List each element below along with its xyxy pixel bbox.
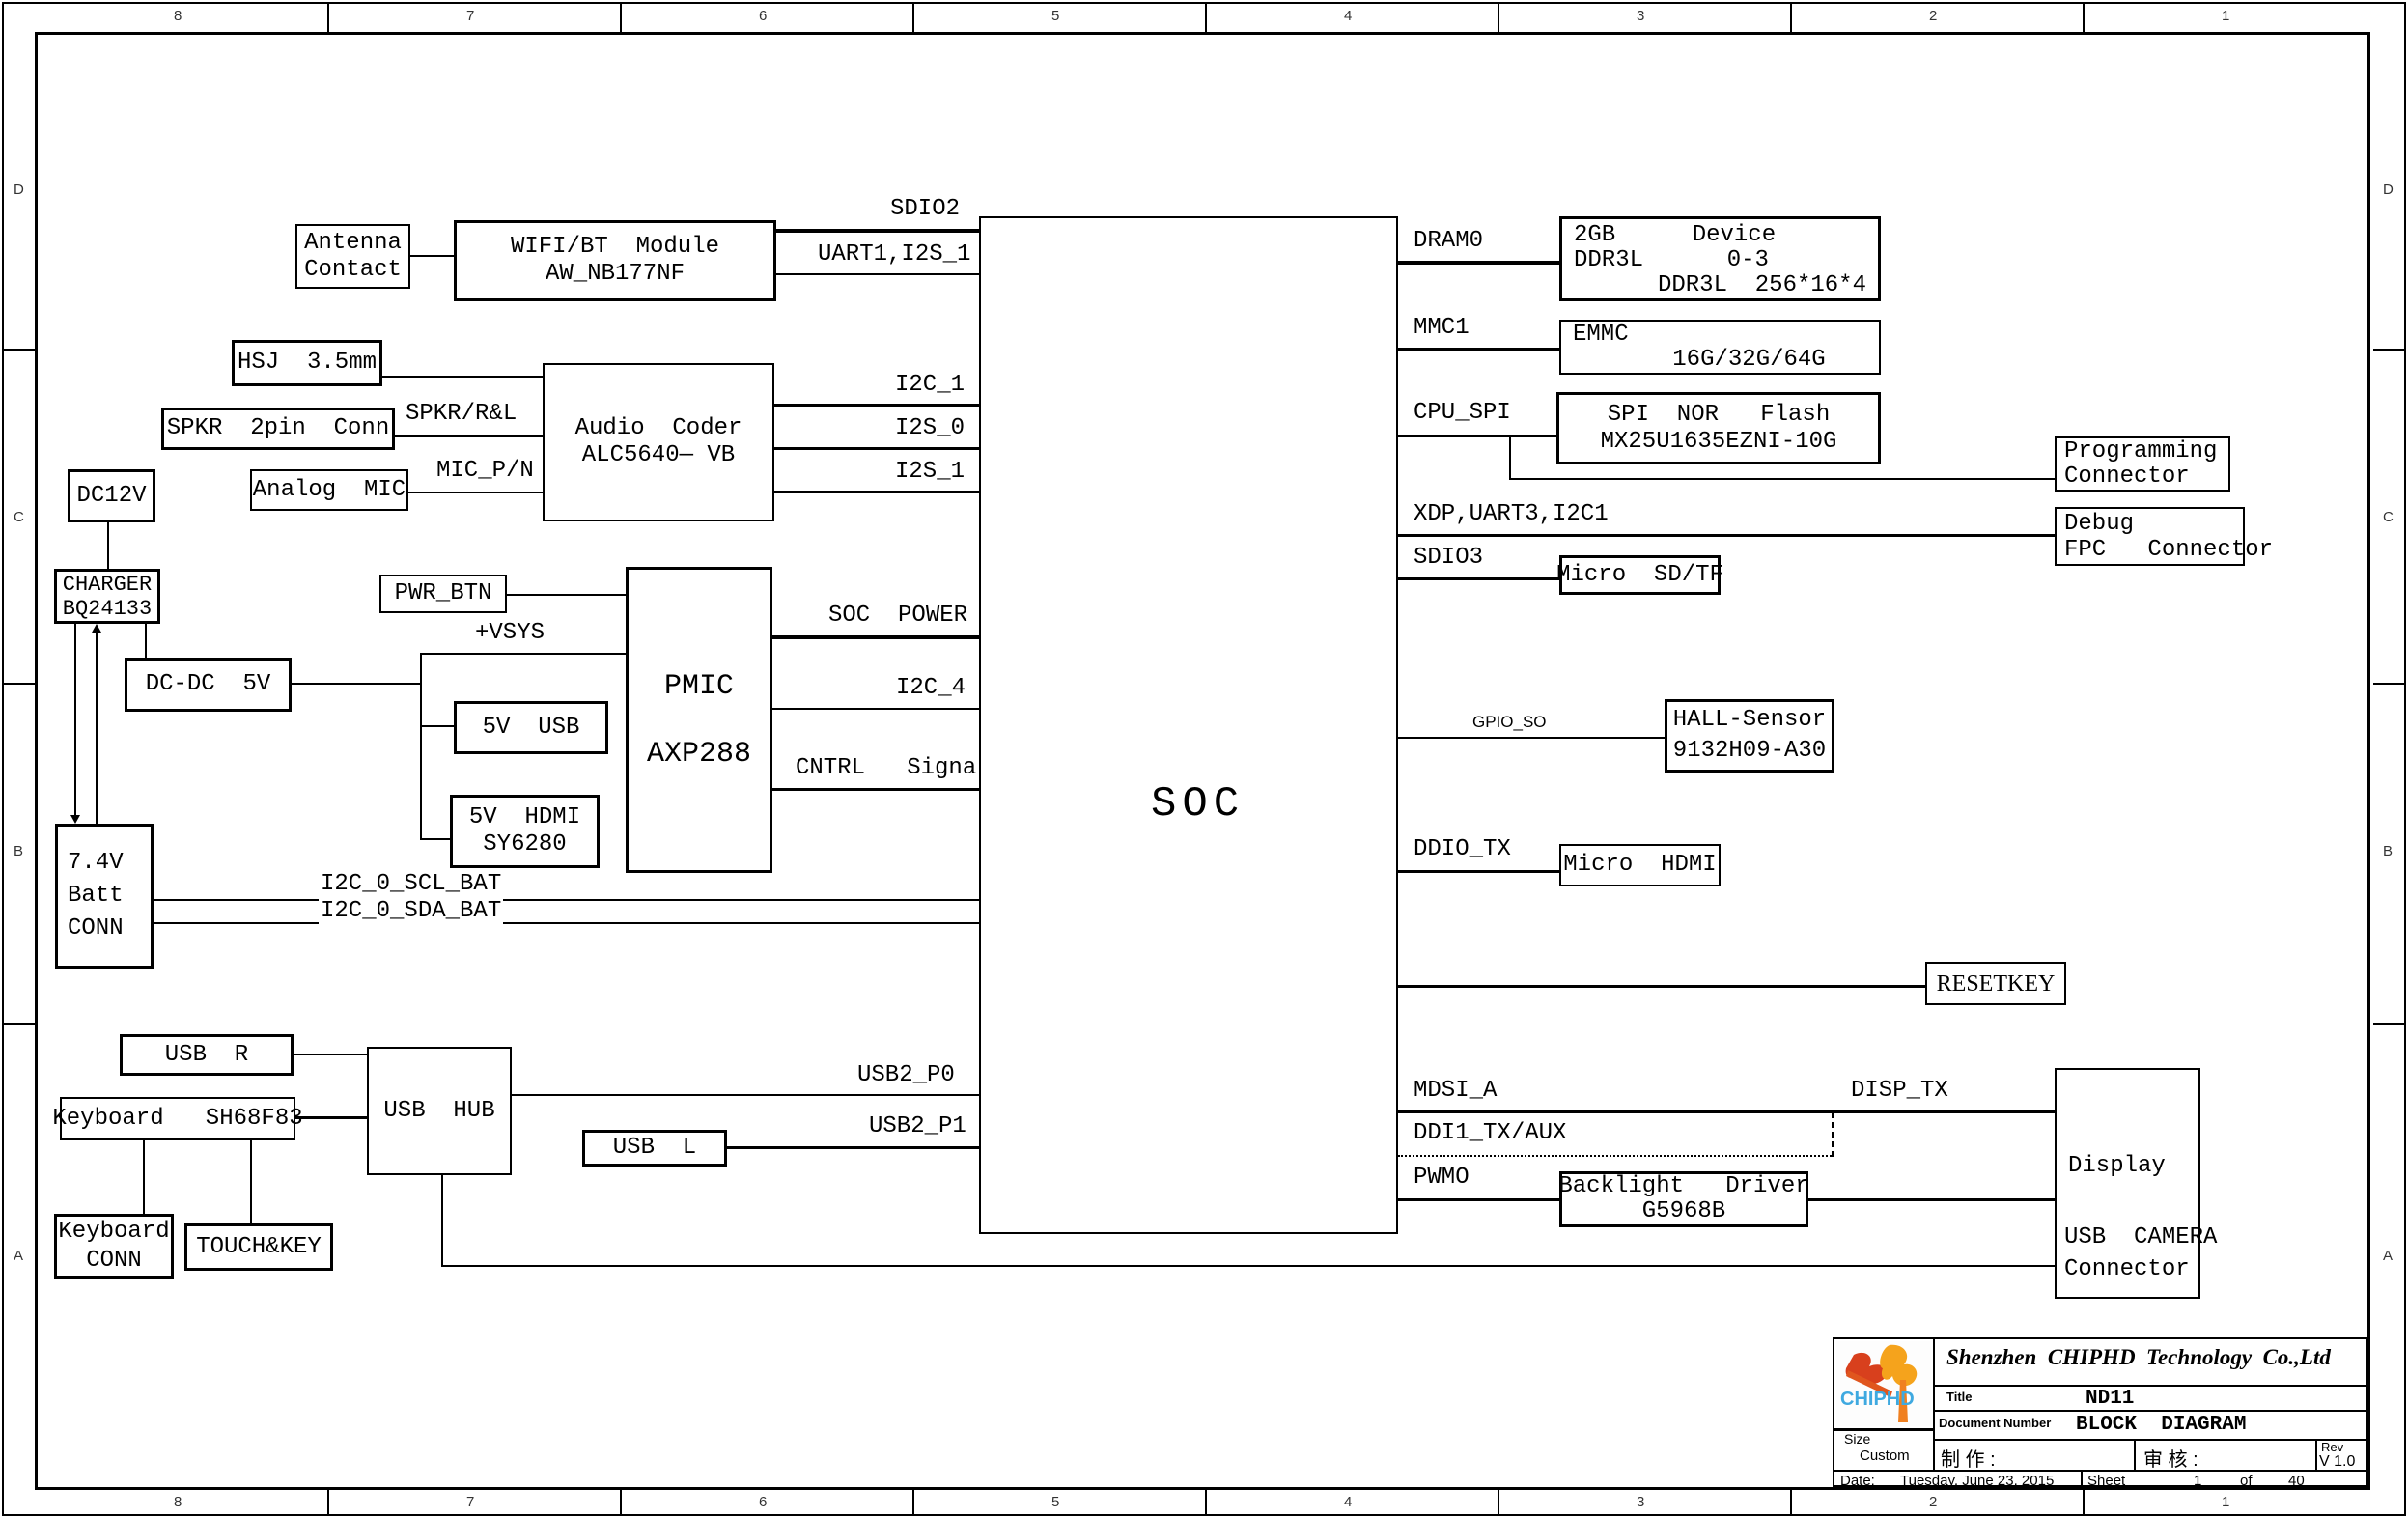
block-charger: CHARGER BQ24133 <box>54 569 160 624</box>
net-label-gpio-so: GPIO_SO <box>1472 713 1547 732</box>
block-text: CONN <box>86 1247 142 1276</box>
zone-row: A <box>2383 1248 2393 1264</box>
titleblock-divider <box>2315 1439 2317 1470</box>
zone-divider <box>620 1490 622 1514</box>
zone-divider <box>1498 4 1499 32</box>
block-text: DDR3L <box>1574 248 1643 273</box>
net-label-mmc1: MMC1 <box>1412 315 1471 341</box>
net-label-i2c1: I2C_1 <box>893 372 966 398</box>
block-text: CHARGER <box>63 573 152 597</box>
wire-spkr <box>395 435 543 437</box>
block-text: Programming <box>2064 439 2217 464</box>
block-usb-l: USB L <box>582 1130 727 1167</box>
block-resetkey: RESETKEY <box>1925 962 2066 1005</box>
wire <box>74 624 76 822</box>
net-label-scl: I2C_0_SCL_BAT <box>319 871 503 897</box>
titleblock-divider <box>1933 1385 2367 1387</box>
block-programming-connector: Programming Connector <box>2055 436 2230 492</box>
date-value: Tuesday, June 23, 2015 <box>1900 1473 2054 1489</box>
block-dcdc-5v: DC-DC 5V <box>125 658 292 712</box>
titleblock-divider <box>1933 1410 2367 1412</box>
zone-col: 1 <box>2222 8 2229 24</box>
net-label-i2c4: I2C_4 <box>894 675 967 701</box>
block-text: RESETKEY <box>1937 970 2056 998</box>
block-antenna-contact: Antenna Contact <box>295 224 410 289</box>
made-by-label: 制 作 : <box>1941 1444 1996 1472</box>
block-text: FPC Connector <box>2064 537 2273 563</box>
document-number-label: Document Number <box>1939 1416 2051 1430</box>
zone-col: 6 <box>759 8 767 24</box>
block-keyboard-sh68f83: Keyboard SH68F83 <box>60 1097 295 1140</box>
zone-divider <box>4 349 35 351</box>
block-display-connector: Display USB CAMERA Connector <box>2055 1068 2200 1299</box>
wire-resetkey <box>1398 985 1925 988</box>
block-text: BQ24133 <box>63 597 152 621</box>
rev-value: V 1.0 <box>2319 1453 2355 1471</box>
zone-divider <box>4 1023 35 1025</box>
wire-usb2-p0 <box>512 1094 979 1096</box>
document-number: BLOCK DIAGRAM <box>2076 1414 2246 1436</box>
zone-divider <box>1205 4 1207 32</box>
chiphd-logo: CHIPHD <box>1836 1341 1931 1426</box>
zone-col: 3 <box>1637 8 1644 24</box>
block-debug-fpc-connector: Debug FPC Connector <box>2055 507 2245 566</box>
block-text: Display <box>2068 1153 2166 1180</box>
wire-xdp <box>1398 534 2055 537</box>
block-touch-key: TOUCH&KEY <box>184 1223 333 1271</box>
arrowhead <box>92 624 101 632</box>
zone-col: 6 <box>759 1494 767 1510</box>
block-text: EMMC <box>1573 323 1867 348</box>
zone-divider <box>2083 4 2085 32</box>
wire-dram0 <box>1398 261 1559 265</box>
block-text: Analog MIC <box>253 477 406 504</box>
titleblock-divider <box>2081 1470 2083 1487</box>
block-text: PWR_BTN <box>395 580 492 607</box>
wire-ddi1-dotted <box>1398 1155 1832 1157</box>
wire <box>292 683 422 685</box>
zone-divider <box>912 4 914 32</box>
wire-vsys <box>420 653 626 655</box>
block-ddr3l: 2GBDevice DDR3L0-3 DDR3L 256*16*4 <box>1559 216 1881 301</box>
block-batt-conn: 7.4V Batt CONN <box>55 824 154 969</box>
wire-pwrbtn <box>507 594 626 596</box>
zone-col: 7 <box>466 1494 474 1510</box>
wire <box>420 838 450 840</box>
block-text: Micro HDMI <box>1563 852 1716 879</box>
block-wifi-bt-module: WIFI/BT Module AW_NB177NF <box>454 220 776 301</box>
wire <box>96 630 98 824</box>
block-text: Micro SD/TF <box>1556 562 1723 589</box>
sheet-number: 1 <box>2194 1473 2201 1489</box>
block-hsj-jack: HSJ 3.5mm <box>232 340 382 386</box>
net-label-mic: MIC_P/N <box>434 458 536 484</box>
block-text: 2GB <box>1574 223 1615 248</box>
block-text: Keyboard <box>58 1218 169 1247</box>
zone-divider <box>912 1490 914 1514</box>
zone-col: 1 <box>2222 1494 2229 1510</box>
wire-usb2-p1 <box>727 1146 979 1149</box>
net-label-i2s1: I2S_1 <box>893 459 966 485</box>
block-text: ALC5640— VB <box>582 442 735 469</box>
zone-divider <box>1205 1490 1207 1514</box>
zone-col: 4 <box>1344 8 1352 24</box>
title-block: CHIPHD Shenzhen CHIPHD Technology Co.,Lt… <box>1833 1337 2367 1487</box>
block-5v-usb: 5V USB <box>454 701 608 754</box>
wire-i2s1 <box>774 491 979 493</box>
wire-pwmo <box>1398 1198 1559 1201</box>
block-usb-hub: USB HUB <box>367 1047 512 1175</box>
block-text: 7.4V <box>68 847 124 880</box>
zone-col: 3 <box>1637 1494 1644 1510</box>
block-text: USB R <box>165 1042 248 1069</box>
net-label-cntrl: CNTRL Signals <box>794 755 1006 781</box>
titleblock-divider <box>1834 1470 2369 1472</box>
wire-i2c4 <box>772 708 979 710</box>
zone-divider <box>2373 1023 2404 1025</box>
net-label-sdio2: SDIO2 <box>888 196 962 222</box>
zone-row: D <box>2383 182 2394 198</box>
doc-title: ND11 <box>2086 1388 2134 1410</box>
wire-mdsi <box>1398 1110 2055 1113</box>
zone-divider <box>1790 1490 1792 1514</box>
block-text: 16G/32G/64G <box>1573 348 1867 373</box>
block-text: DC12V <box>76 483 146 510</box>
wire-i2s0 <box>774 447 979 450</box>
wire-usb-camera <box>441 1265 2055 1267</box>
zone-col: 2 <box>1929 8 1937 24</box>
titleblock-divider <box>2134 1439 2136 1470</box>
wire <box>1509 435 1511 480</box>
wire-cpu-spi <box>1398 435 1556 437</box>
block-text: 5V USB <box>483 715 580 742</box>
zone-col: 8 <box>174 8 182 24</box>
zone-row: C <box>14 509 24 525</box>
block-text: SY6280 <box>483 831 566 858</box>
block-pwr-btn: PWR_BTN <box>379 575 507 613</box>
wire <box>294 1054 367 1055</box>
zone-col: 5 <box>1051 8 1059 24</box>
wire <box>410 255 454 257</box>
block-spkr-conn: SPKR 2pin Conn <box>161 408 395 450</box>
block-text: SPI NOR Flash <box>1608 402 1830 429</box>
net-label-spkr: SPKR/R&L <box>404 401 518 427</box>
block-text: DDR3L 256*16*4 <box>1574 273 1866 298</box>
svg-text:CHIPHD: CHIPHD <box>1840 1389 1915 1410</box>
block-text: 0-3 <box>1727 248 1769 273</box>
block-text: SPKR 2pin Conn <box>167 415 389 442</box>
block-text: Debug <box>2064 511 2134 537</box>
block-text: 9132H09-A30 <box>1673 736 1826 767</box>
date-label: Date: <box>1840 1473 1875 1489</box>
zone-divider <box>1498 1490 1499 1514</box>
zone-col: 2 <box>1929 1494 1937 1510</box>
zone-col: 5 <box>1051 1494 1059 1510</box>
zone-col: 4 <box>1344 1494 1352 1510</box>
block-text: Keyboard SH68F83 <box>52 1106 302 1133</box>
block-text: MX25U1635EZNI-10G <box>1601 429 1837 456</box>
title-label: Title <box>1946 1390 1973 1404</box>
net-label-usb2p0: USB2_P0 <box>855 1062 957 1088</box>
block-text: DC-DC 5V <box>146 671 271 698</box>
wire <box>250 1140 252 1223</box>
wire-soc-power <box>772 635 979 639</box>
block-micro-hdmi: Micro HDMI <box>1559 844 1721 886</box>
block-text: Connector <box>2064 1256 2190 1283</box>
block-text: USB CAMERA <box>2064 1224 2217 1251</box>
arrowhead <box>70 815 80 824</box>
wire <box>295 1116 367 1119</box>
sheet-label: Sheet <box>2087 1473 2125 1489</box>
zone-divider <box>1790 4 1792 32</box>
schematic-sheet: 8 7 6 5 4 3 2 1 8 7 6 5 4 3 2 1 D C B A … <box>0 0 2408 1518</box>
block-audio-coder: Audio Coder ALC5640— VB <box>543 363 774 521</box>
zone-col: 7 <box>466 8 474 24</box>
zone-divider <box>2373 349 2404 351</box>
wire-vsys-rail <box>420 653 422 840</box>
block-5v-hdmi: 5V HDMI SY6280 <box>450 795 600 868</box>
block-text: Contact <box>304 257 402 284</box>
zone-col: 8 <box>174 1494 182 1510</box>
block-dc12v: DC12V <box>68 469 155 522</box>
net-label-sdio3: SDIO3 <box>1412 545 1485 571</box>
block-text: AW_NB177NF <box>546 261 685 288</box>
block-soc <box>979 216 1398 1234</box>
zone-divider <box>2083 1490 2085 1514</box>
block-spi-nor-flash: SPI NOR Flash MX25U1635EZNI-10G <box>1556 392 1881 464</box>
wire <box>382 376 543 378</box>
titleblock-divider <box>1933 1339 1935 1470</box>
block-pmic: PMIC AXP288 <box>626 567 772 873</box>
net-label-pwmo: PWMO <box>1412 1165 1471 1191</box>
block-text: CONN <box>68 913 124 945</box>
block-text: USB HUB <box>383 1098 494 1125</box>
block-text: HSJ 3.5mm <box>238 350 377 377</box>
size-label: Size <box>1844 1431 1870 1447</box>
block-text: AXP288 <box>647 720 751 788</box>
block-usb-r: USB R <box>120 1034 294 1076</box>
wire-i2c0-scl <box>154 899 979 901</box>
block-text: G5968B <box>1642 1199 1725 1224</box>
block-hall-sensor: HALL-Sensor 9132H09-A30 <box>1665 699 1834 773</box>
net-label-mdsi: MDSI_A <box>1412 1078 1498 1104</box>
block-text: 5V HDMI <box>469 804 580 831</box>
net-label-sda: I2C_0_SDA_BAT <box>319 898 503 924</box>
wire-sdio2 <box>776 229 979 233</box>
zone-divider <box>327 1490 329 1514</box>
block-text: Antenna <box>304 230 402 257</box>
wire-ddi1-dashed <box>1832 1112 1834 1157</box>
zone-row: A <box>14 1248 23 1264</box>
wire <box>145 624 147 658</box>
net-label-usb2p1: USB2_P1 <box>867 1113 968 1139</box>
net-label-dram0: DRAM0 <box>1412 228 1485 254</box>
net-label-disptx: DISP_TX <box>1849 1078 1950 1104</box>
block-text: Batt <box>68 880 124 913</box>
zone-row: C <box>2383 509 2394 525</box>
soc-label: SOC <box>1151 780 1245 829</box>
wire-backlight-out <box>1808 1198 2055 1201</box>
company-name: Shenzhen CHIPHD Technology Co.,Ltd <box>1946 1345 2364 1370</box>
wire-mic <box>408 492 543 493</box>
block-micro-sd: Micro SD/TF <box>1559 555 1721 595</box>
net-label-vsys: +VSYS <box>473 620 546 646</box>
zone-divider <box>4 683 35 685</box>
wire-mmc1 <box>1398 348 1559 351</box>
sheet-of-label: of <box>2240 1473 2253 1489</box>
sheet-total: 40 <box>2288 1473 2305 1489</box>
review-label: 审 核 : <box>2143 1444 2198 1472</box>
net-label-ddio: DDIO_TX <box>1412 836 1513 862</box>
wire <box>143 1140 145 1214</box>
block-text: USB L <box>613 1135 696 1162</box>
zone-divider <box>2373 683 2404 685</box>
wire <box>420 725 454 727</box>
zone-divider <box>620 4 622 32</box>
net-label-soc-power: SOC POWER <box>826 603 969 629</box>
block-backlight-driver: Backlight Driver G5968B <box>1559 1171 1808 1227</box>
block-text: Backlight Driver <box>1558 1174 1808 1199</box>
block-text: PMIC <box>664 653 734 720</box>
net-label-i2s0: I2S_0 <box>893 415 966 441</box>
wire-uart1 <box>776 273 979 275</box>
block-text: HALL-Sensor <box>1673 705 1826 736</box>
wire-i2c0-sda <box>154 922 979 924</box>
zone-row: D <box>14 182 24 198</box>
zone-row: B <box>2383 843 2393 859</box>
block-emmc: EMMC 16G/32G/64G <box>1559 320 1881 375</box>
block-text: Device <box>1693 223 1776 248</box>
wire-ddio-tx <box>1398 870 1559 873</box>
block-text: TOUCH&KEY <box>196 1234 322 1261</box>
net-label-xdp: XDP,UART3,I2C1 <box>1412 501 1610 527</box>
net-label-cpuspi: CPU_SPI <box>1412 400 1513 426</box>
block-text: Audio Coder <box>575 415 742 442</box>
wire-sdio3 <box>1398 577 1559 580</box>
block-analog-mic: Analog MIC <box>250 469 408 511</box>
block-text: WIFI/BT Module <box>511 234 719 261</box>
zone-row: B <box>14 843 23 859</box>
net-label-ddi1: DDI1_TX/AUX <box>1412 1120 1568 1146</box>
wire-i2c1 <box>774 404 979 407</box>
size-value: Custom <box>1860 1448 1910 1464</box>
wire-prog <box>1509 478 2055 480</box>
titleblock-divider <box>1933 1439 2367 1441</box>
wire-cntrl <box>772 788 979 791</box>
wire <box>441 1175 443 1267</box>
zone-divider <box>327 4 329 32</box>
wire <box>107 522 109 569</box>
net-label-uart1: UART1,I2S_1 <box>816 241 972 267</box>
block-keyboard-conn: Keyboard CONN <box>54 1214 174 1279</box>
rev-label: Rev <box>2321 1440 2343 1454</box>
wire-gpio-so <box>1398 737 1665 739</box>
block-text: Connector <box>2064 464 2190 490</box>
